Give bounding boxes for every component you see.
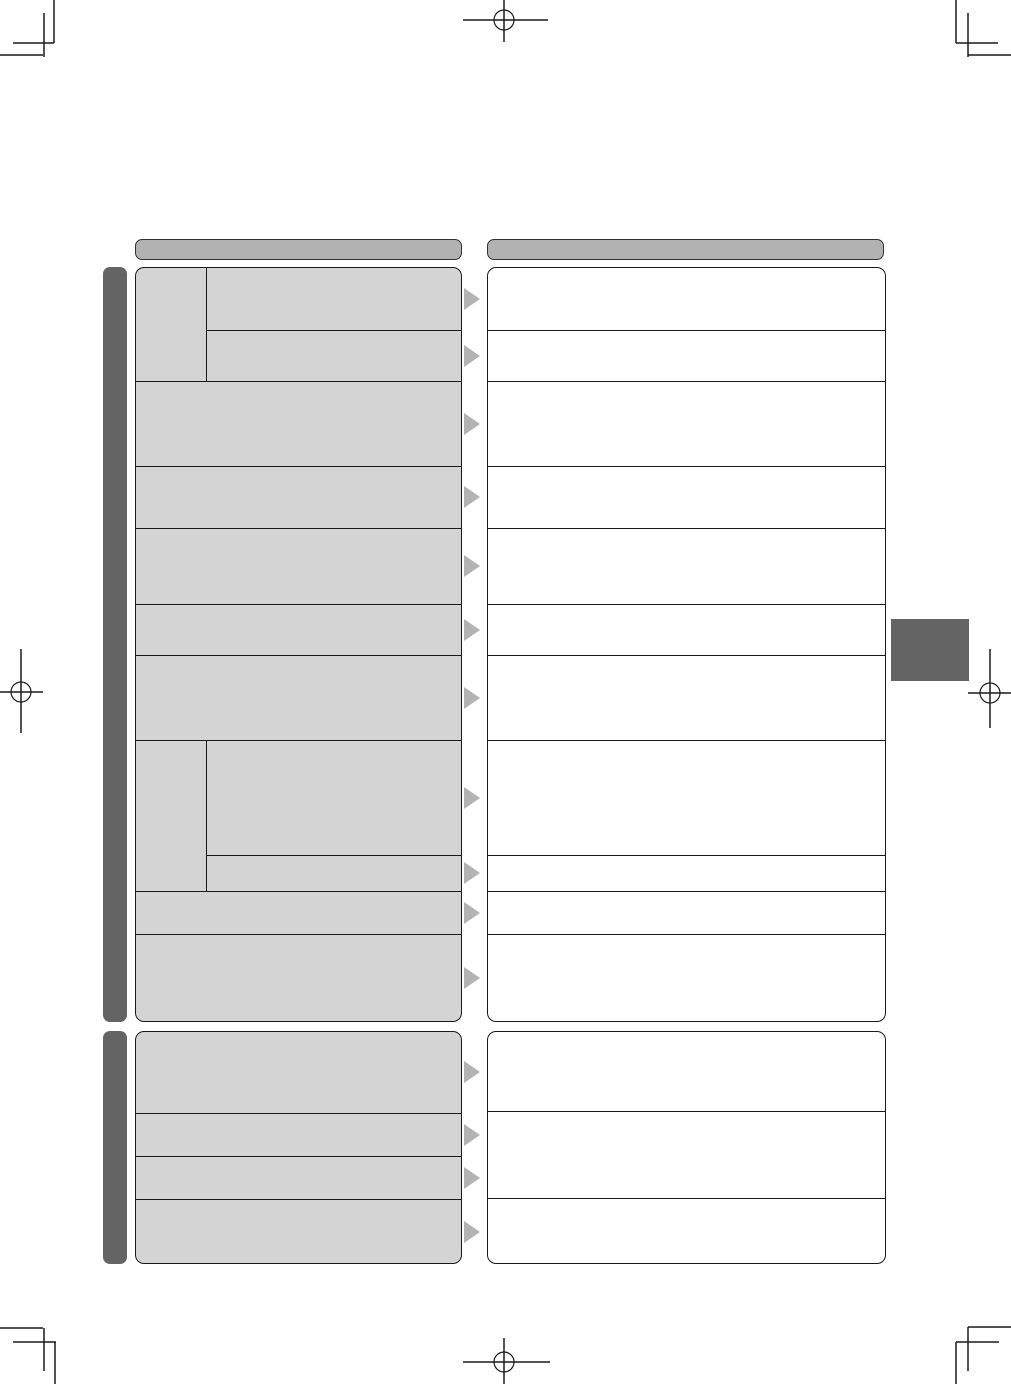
- left-panel-group-1: [135, 267, 462, 1022]
- symptom-cell: [136, 656, 461, 741]
- remedy-cell: [488, 892, 885, 935]
- left-panel-group-2: [135, 1031, 462, 1264]
- symptom-cell: [207, 268, 461, 331]
- right-arrow-icon: [464, 1221, 480, 1243]
- remedy-cell: [488, 741, 885, 856]
- remedy-cell: [488, 1112, 885, 1199]
- symptom-cell: [207, 741, 461, 856]
- symptom-cell: [207, 856, 461, 892]
- remedy-cell: [488, 605, 885, 656]
- registration-mark-right-middle: [968, 649, 1011, 728]
- symptom-cell: [136, 382, 461, 467]
- right-arrow-icon: [464, 902, 480, 924]
- registration-mark-top-center: [463, 0, 548, 42]
- right-arrow-icon: [464, 619, 480, 641]
- symptom-cell: [207, 331, 461, 382]
- symptom-cell: [136, 1200, 461, 1264]
- remedy-cell: [488, 467, 885, 529]
- symptom-sub-column: [207, 741, 461, 891]
- symptom-cell: [136, 1157, 461, 1200]
- symptom-split-row: [136, 741, 461, 892]
- section-indicator-bar-1: [103, 267, 127, 1022]
- right-arrow-icon: [464, 787, 480, 809]
- remedy-cell: [488, 1199, 885, 1264]
- right-arrow-icon: [464, 413, 480, 435]
- trim-mark-bottom-right: [956, 1327, 1011, 1384]
- registration-mark-left-middle: [0, 649, 43, 733]
- right-arrow-icon: [464, 555, 480, 577]
- right-arrow-icon: [464, 687, 480, 709]
- right-column-header-bar: [487, 239, 884, 260]
- section-indicator-bar-2: [103, 1031, 127, 1264]
- right-arrow-icon: [464, 1124, 480, 1146]
- symptom-cell: [136, 1032, 461, 1114]
- symptom-cell: [136, 892, 461, 935]
- manual-page: [0, 0, 1011, 1384]
- right-panel-group-1: [487, 267, 886, 1022]
- right-arrow-icon: [464, 345, 480, 367]
- symptom-cell: [136, 605, 461, 656]
- remedy-cell: [488, 856, 885, 892]
- right-arrow-icon: [464, 1167, 480, 1189]
- symptom-split-row: [136, 268, 461, 382]
- remedy-cell: [488, 1032, 885, 1112]
- registration-mark-bottom-center: [463, 1338, 550, 1384]
- right-arrow-icon: [464, 486, 480, 508]
- symptom-cell: [136, 467, 461, 529]
- remedy-cell: [488, 529, 885, 605]
- symptom-side-cell: [136, 268, 207, 381]
- right-arrow-icon: [464, 967, 480, 989]
- left-column-header-bar: [135, 239, 462, 260]
- remedy-cell: [488, 935, 885, 1022]
- symptom-sub-column: [207, 268, 461, 381]
- right-arrow-icon: [464, 288, 480, 310]
- trim-mark-bottom-left: [0, 1328, 56, 1384]
- remedy-cell: [488, 382, 885, 467]
- remedy-cell: [488, 331, 885, 382]
- symptom-cell: [136, 935, 461, 1022]
- right-arrow-icon: [464, 862, 480, 884]
- right-panel-group-2: [487, 1031, 886, 1264]
- remedy-cell: [488, 656, 885, 741]
- trim-mark-top-right: [956, 0, 1011, 57]
- symptom-cell: [136, 529, 461, 605]
- trim-mark-top-left: [0, 0, 54, 57]
- remedy-cell: [488, 268, 885, 331]
- symptom-cell: [136, 1114, 461, 1157]
- chapter-edge-tab: [891, 619, 969, 681]
- symptom-side-cell: [136, 741, 207, 891]
- right-arrow-icon: [464, 1061, 480, 1083]
